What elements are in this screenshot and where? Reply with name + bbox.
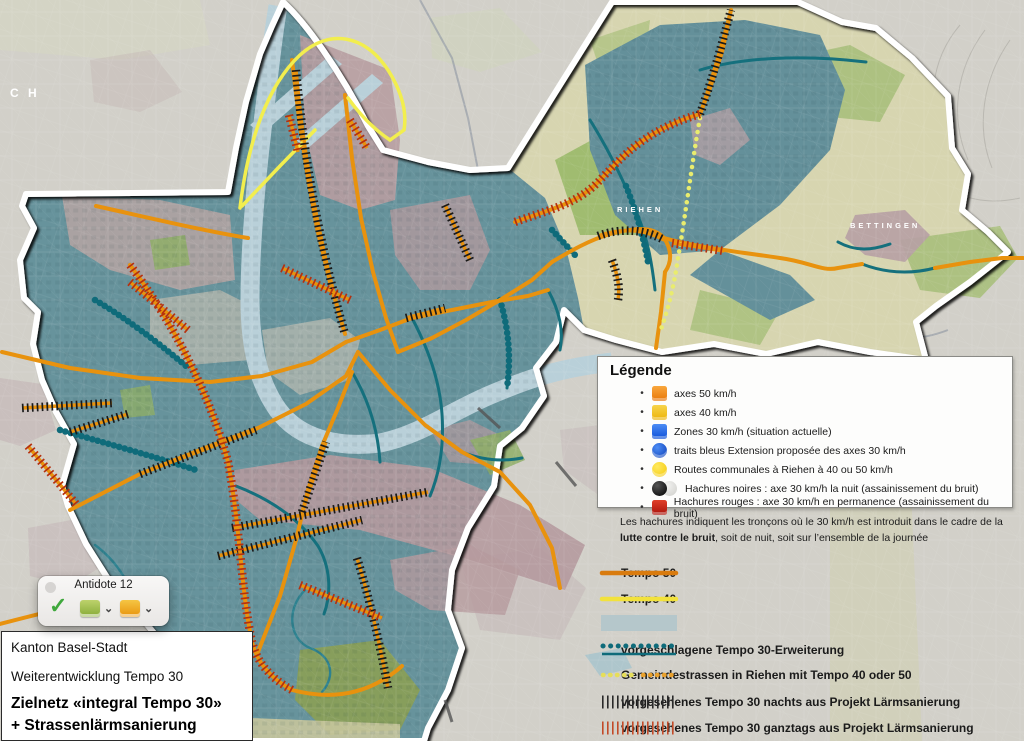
t30-allday-sample — [599, 718, 679, 738]
black-grey-circle-icon — [652, 481, 678, 496]
legend-panel: Légende •axes 50 km/h •axes 40 km/h •Zon… — [597, 356, 1013, 508]
axes50-icon — [652, 386, 667, 401]
legend-item-label: Zones 30 km/h (situation actuelle) — [674, 426, 832, 438]
bullet: • — [632, 483, 652, 494]
bullet: • — [632, 445, 652, 456]
legend-item: •Routes communales à Riehen à 40 ou 50 k… — [610, 460, 1012, 479]
yellow-circle-icon — [652, 462, 667, 477]
bullet: • — [632, 388, 652, 399]
antidote-toolbar[interactable]: Antidote 12 ✓ ⌄ ⌄ — [38, 576, 169, 626]
canton-name: Kanton Basel-Stadt — [11, 640, 246, 655]
riehen-communal-sample — [599, 665, 679, 685]
guides-book-icon[interactable] — [120, 600, 140, 617]
t30-night-sample — [599, 692, 679, 712]
project-name: Weiterentwicklung Tempo 30 — [11, 669, 246, 684]
zones30-icon — [652, 424, 667, 439]
note-line1: Les hachures indiquent les tronçons où l… — [620, 516, 1003, 528]
riehen-label: RIEHEN — [617, 205, 663, 214]
legend-title: Légende — [610, 362, 1012, 379]
axes40-icon — [652, 405, 667, 420]
chevron-down-icon[interactable]: ⌄ — [144, 602, 153, 615]
line-legend-row: Gemeindestrassen in Riehen mit Tempo 40 … — [599, 665, 912, 685]
line-legend-row: Tempo 30 — [599, 613, 676, 633]
tempo40-sample — [599, 589, 679, 609]
line-legend-row: Tempo 40 — [599, 589, 676, 609]
legend-item-label: axes 50 km/h — [674, 388, 736, 400]
tempo30-sample — [599, 613, 679, 633]
line-legend-row: vorgesehenes Tempo 30 ganztags aus Proje… — [599, 718, 974, 738]
note-bold: lutte contre le bruit — [620, 532, 715, 544]
legend-item: •axes 40 km/h — [610, 403, 1012, 422]
line-legend-row: Tempo 50 — [599, 563, 676, 583]
chevron-down-icon[interactable]: ⌄ — [104, 602, 113, 615]
antidote-title: Antidote 12 — [38, 579, 169, 591]
t30-extension-sample — [599, 640, 679, 660]
blue-circle-icon — [652, 443, 667, 458]
map-title-line1: Zielnetz «integral Tempo 30» — [11, 693, 246, 715]
map-screenshot: C H RIEHEN BETTINGEN Légende •axes 50 km… — [0, 0, 1024, 741]
map-title-box: Kanton Basel-Stadt Weiterentwicklung Tem… — [1, 631, 253, 741]
note-rest: , soit de nuit, soit sur l’ensemble de l… — [715, 532, 928, 544]
line-legend-row: vorgeschlagene Tempo 30-Erweiterung — [599, 640, 844, 660]
legend-item-label: Hachures noires : axe 30 km/h la nuit (a… — [685, 483, 979, 495]
bettingen-label: BETTINGEN — [850, 221, 920, 230]
red-square-icon — [652, 500, 667, 515]
legend-item: •axes 50 km/h — [610, 384, 1012, 403]
legend-item: •Zones 30 km/h (situation actuelle) — [610, 422, 1012, 441]
bullet: • — [632, 502, 652, 513]
country-label: C H — [10, 86, 40, 100]
legend-item-label: axes 40 km/h — [674, 407, 736, 419]
tempo50-sample — [599, 563, 679, 583]
map-title-line2: + Strassenlärmsanierung — [11, 715, 246, 737]
legend-item-label: Routes communales à Riehen à 40 ou 50 km… — [674, 464, 893, 476]
bullet: • — [632, 464, 652, 475]
bullet: • — [632, 407, 652, 418]
dictionary-book-icon[interactable] — [80, 600, 100, 617]
legend-note: Les hachures indiquent les tronçons où l… — [620, 515, 1012, 547]
corrector-check-icon[interactable]: ✓ — [49, 593, 67, 619]
line-legend-row: vorgesehenes Tempo 30 nachts aus Projekt… — [599, 692, 960, 712]
legend-item: •traits bleus Extension proposée des axe… — [610, 441, 1012, 460]
legend-item-label: traits bleus Extension proposée des axes… — [674, 445, 906, 457]
bullet: • — [632, 426, 652, 437]
